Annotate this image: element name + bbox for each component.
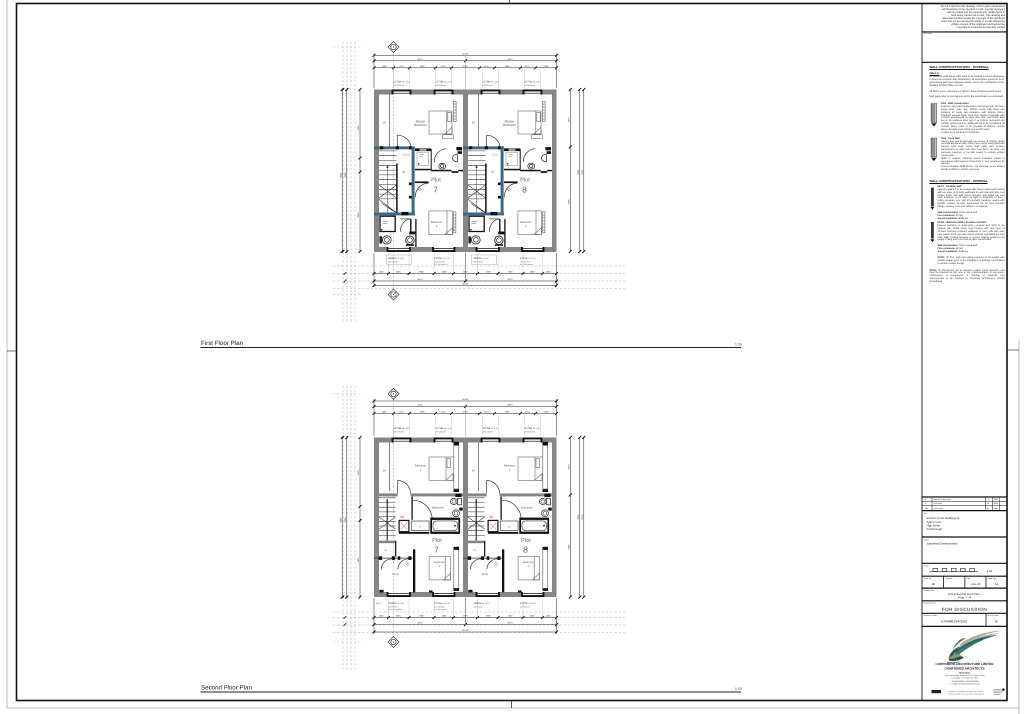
svg-text:1495: 1495	[382, 65, 388, 68]
svg-text:8070: 8070	[418, 278, 424, 281]
svg-text:cill 150mm: cill 150mm	[474, 605, 484, 608]
svg-text:3920: 3920	[357, 557, 360, 563]
svg-text:8070: 8070	[418, 58, 424, 61]
svg-text:1210: 1210	[525, 411, 531, 414]
svg-text:1:50: 1:50	[735, 343, 742, 347]
svg-text:8365: 8365	[344, 517, 347, 523]
svg-text:1210: 1210	[525, 65, 531, 68]
svg-text:A1: A1	[995, 582, 999, 586]
svg-text:8545: 8545	[339, 517, 342, 523]
svg-text:JB: JB	[987, 498, 990, 501]
svg-text:2480: 2480	[419, 271, 425, 274]
svg-text:cill 1050mm: cill 1050mm	[483, 84, 494, 87]
svg-text:1980: 1980	[505, 411, 511, 414]
svg-text:Bedroom: Bedroom	[414, 123, 427, 127]
svg-text:1955: 1955	[530, 271, 536, 274]
svg-text:06/20: 06/20	[994, 498, 999, 501]
svg-text:Cossington - Leicester LE7 4UZ: Cossington - Leicester LE7 4UZ	[951, 677, 979, 680]
svg-text:Registered in England and Wale: Registered in England and Wales No. 3948…	[948, 690, 983, 693]
svg-text:Issued for discussion: Issued for discussion	[934, 498, 952, 501]
svg-text:Spearhead Developments: Spearhead Developments	[927, 543, 959, 546]
svg-text:2110w hd 2100: 2110w hd 2100	[389, 602, 405, 605]
svg-text:4125: 4125	[357, 125, 360, 131]
svg-text:Plots 7 - 8: Plots 7 - 8	[958, 596, 971, 600]
svg-text:4125: 4125	[357, 470, 360, 476]
svg-text:June 20: June 20	[971, 582, 981, 586]
svg-text:2055: 2055	[486, 271, 492, 274]
svg-text:cill 1050mm: cill 1050mm	[394, 430, 405, 433]
svg-text:Description: Description	[934, 507, 943, 510]
svg-text:1:50: 1:50	[987, 569, 993, 573]
svg-text:cill 1050mm: cill 1050mm	[525, 430, 536, 433]
svg-text:Plot: Plot	[431, 177, 441, 184]
svg-text:cill 1050mm: cill 1050mm	[436, 84, 447, 87]
svg-text:High Street: High Street	[927, 524, 941, 527]
svg-text:1210: 1210	[484, 65, 490, 68]
svg-text:St: St	[384, 549, 387, 552]
svg-text:1450: 1450	[546, 615, 552, 618]
svg-text:8070: 8070	[508, 278, 514, 281]
svg-text:2055: 2055	[396, 615, 402, 618]
svg-text:cill 1050mmd.g. throughout: cill 1050mmd.g. throughout	[434, 260, 448, 266]
svg-text:8725: 8725	[581, 169, 584, 175]
svg-text:1980: 1980	[420, 411, 426, 414]
svg-text:8545: 8545	[339, 172, 342, 178]
svg-text:Date: Date	[994, 507, 998, 510]
svg-text:cill 150mm: cill 150mm	[389, 260, 399, 263]
svg-text:1770w hd 2100: 1770w hd 2100	[434, 602, 450, 605]
svg-text:8070: 8070	[508, 58, 514, 61]
svg-text:2870: 2870	[567, 464, 570, 470]
svg-text:W: W	[383, 121, 386, 125]
svg-text:Drawing Status:: Drawing Status:	[924, 601, 937, 604]
svg-text:Scarborough: Scarborough	[927, 528, 943, 531]
svg-text:Bedroom: Bedroom	[434, 561, 445, 564]
svg-text:1495: 1495	[382, 411, 388, 414]
svg-text:Plot: Plot	[521, 537, 531, 544]
svg-text:JB: JB	[931, 582, 934, 586]
svg-text:0784/MD/24/2001: 0784/MD/24/2001	[941, 619, 967, 623]
svg-text:A: A	[925, 502, 927, 505]
svg-text:7: 7	[434, 545, 439, 555]
svg-text:1955: 1955	[442, 271, 448, 274]
svg-text:06/20: 06/20	[994, 502, 999, 505]
svg-text:Drawn By: Drawn By	[924, 577, 932, 580]
svg-text:By: By	[987, 507, 989, 510]
svg-text:Date:: Date:	[966, 577, 971, 580]
svg-text:1955: 1955	[442, 615, 448, 618]
svg-text:8545: 8545	[577, 169, 580, 175]
svg-text:1770w hd 2100: 1770w hd 2100	[525, 427, 541, 430]
svg-text:2055: 2055	[486, 615, 492, 618]
svg-text:Head Office: Head Office	[959, 671, 971, 674]
svg-text:1980: 1980	[505, 65, 511, 68]
svg-text:2480: 2480	[419, 615, 425, 618]
svg-text:16140: 16140	[462, 283, 469, 286]
svg-text:Plot: Plot	[432, 537, 442, 544]
svg-text:1495: 1495	[544, 65, 550, 68]
svg-text:1770w hd 2100: 1770w hd 2100	[434, 257, 450, 260]
svg-text:2110w hd 2100: 2110w hd 2100	[389, 257, 405, 260]
svg-text:2480: 2480	[508, 615, 514, 618]
svg-text:1495: 1495	[544, 411, 550, 414]
svg-text:8070: 8070	[508, 404, 514, 407]
svg-text:W: W	[383, 469, 386, 473]
svg-text:1770w hd 2100: 1770w hd 2100	[483, 427, 499, 430]
svg-text:cill 1050mm: cill 1050mm	[483, 430, 494, 433]
svg-text:1770w hd 2100: 1770w hd 2100	[394, 81, 410, 84]
svg-text:16140: 16140	[462, 52, 469, 55]
svg-text:16140: 16140	[462, 398, 469, 401]
svg-text:16140: 16140	[462, 629, 469, 632]
svg-text:First issue: First issue	[934, 502, 943, 505]
svg-text:1210: 1210	[484, 411, 490, 414]
svg-text:1770w hd 2100: 1770w hd 2100	[520, 602, 536, 605]
svg-text:2110w hd 2100: 2110w hd 2100	[474, 602, 490, 605]
svg-text:t. 01509 816005 f. 01509 816: t. 01509 816005 f. 01509 816006	[951, 680, 979, 683]
svg-text:1955: 1955	[530, 615, 536, 618]
svg-text:Revision Number: Revision Number	[987, 614, 1000, 617]
svg-text:Charnwood Edge Business Park -: Charnwood Edge Business Park - Syston Ro…	[945, 674, 985, 677]
svg-text:2055: 2055	[396, 271, 402, 274]
svg-text:8070: 8070	[418, 622, 424, 625]
svg-text:cill 1050mmd.g. throughout: cill 1050mmd.g. throughout	[520, 260, 534, 266]
svg-text:1770w hd 2100: 1770w hd 2100	[436, 81, 452, 84]
svg-text:2110w hd 2100: 2110w hd 2100	[474, 257, 490, 260]
svg-text:2870: 2870	[567, 117, 570, 123]
svg-text:Bathroom: Bathroom	[432, 506, 444, 509]
svg-text:cill 150mmd.g. throughout: cill 150mmd.g. throughout	[389, 605, 403, 611]
svg-text:Checked: Checked	[945, 577, 952, 580]
svg-text:Drawing Title:: Drawing Title:	[924, 589, 935, 592]
svg-text:Registered Office: As Head Off: Registered Office: As Head Office shown …	[948, 692, 984, 695]
svg-text:B: B	[925, 498, 927, 501]
svg-text:1210: 1210	[399, 65, 405, 68]
svg-text:FOR DISCUSSION: FOR DISCUSSION	[942, 607, 987, 612]
svg-text:8365: 8365	[344, 172, 347, 178]
svg-text:1450: 1450	[546, 271, 552, 274]
svg-text:Study: Study	[392, 573, 400, 576]
svg-text:1210: 1210	[441, 411, 447, 414]
svg-text:1770w hd 2100: 1770w hd 2100	[483, 81, 499, 84]
svg-text:1770w hd 2100: 1770w hd 2100	[436, 427, 452, 430]
svg-text:Drawing Number:: Drawing Number:	[924, 614, 938, 617]
svg-text:8725: 8725	[581, 514, 584, 520]
svg-text:e. mail@corporatearchitecture.: e. mail@corporatearchitecture.co.uk	[949, 683, 979, 686]
svg-text:B: B	[995, 620, 998, 624]
svg-text:Site:: Site:	[924, 512, 928, 515]
svg-text:1210: 1210	[399, 411, 405, 414]
svg-text:1450: 1450	[379, 615, 385, 618]
svg-text:8: 8	[523, 545, 528, 555]
svg-text:1210: 1210	[441, 65, 447, 68]
svg-text:5195: 5195	[567, 199, 570, 205]
svg-text:Paper Size: Paper Size	[988, 577, 997, 580]
svg-text:Tylers Court: Tylers Court	[927, 521, 942, 524]
svg-text:cill 1050mm: cill 1050mm	[436, 430, 447, 433]
svg-text:8: 8	[522, 185, 527, 195]
svg-text:Rev: Rev	[925, 507, 928, 510]
svg-text:8070: 8070	[508, 622, 514, 625]
svg-text:Bedroom: Bedroom	[415, 465, 427, 468]
svg-text:2480: 2480	[508, 271, 514, 274]
svg-text:cill 1050mm: cill 1050mm	[394, 84, 405, 87]
svg-text:1770w hd 2100: 1770w hd 2100	[520, 257, 536, 260]
svg-text:Erection of two dwellings at: Erection of two dwellings at	[927, 517, 960, 520]
svg-text:cill 1050mm: cill 1050mm	[525, 84, 536, 87]
svg-text:cill 150mm: cill 150mm	[474, 260, 484, 263]
svg-text:cill 1050mmd.g. throughout: cill 1050mmd.g. throughout	[434, 605, 448, 611]
svg-text:8545: 8545	[577, 514, 580, 520]
svg-text:1450: 1450	[379, 271, 385, 274]
svg-text:cill 1050mm: cill 1050mm	[520, 605, 531, 608]
svg-text:8070: 8070	[418, 404, 424, 407]
svg-text:CHARTERED ARCHITECTS: CHARTERED ARCHITECTS	[944, 666, 984, 670]
svg-text:Plot: Plot	[520, 177, 530, 184]
svg-text:5195: 5195	[567, 544, 570, 550]
svg-text:Second Floor Plan: Second Floor Plan	[201, 685, 252, 692]
svg-text:7: 7	[433, 185, 438, 195]
svg-text:First Floor Plan: First Floor Plan	[201, 340, 244, 347]
svg-text:1980: 1980	[420, 65, 426, 68]
svg-text:1:50: 1:50	[735, 687, 742, 691]
svg-text:1770w hd 2100: 1770w hd 2100	[394, 427, 410, 430]
svg-text:Client:: Client:	[924, 538, 930, 541]
svg-text:3: 3	[420, 469, 422, 472]
svg-text:JB: JB	[987, 502, 990, 505]
svg-text:Bedroom: Bedroom	[431, 221, 443, 224]
svg-text:Scale:: Scale:	[924, 565, 930, 568]
svg-text:1770w hd 2100: 1770w hd 2100	[525, 81, 541, 84]
svg-text:3920: 3920	[357, 212, 360, 218]
svg-text:FW1: FW1	[376, 602, 381, 605]
